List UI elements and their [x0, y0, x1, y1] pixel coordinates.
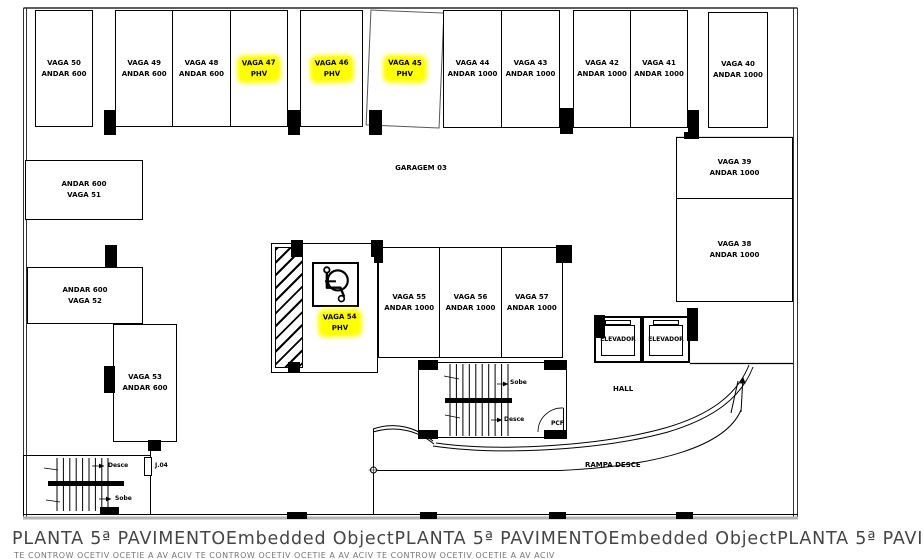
column: [104, 110, 116, 135]
garage-label: GARAGEM 03: [380, 164, 462, 172]
stall-floor-label: ANDAR 600: [62, 179, 107, 190]
column: [556, 245, 572, 263]
stall-floor-label: ANDAR 1000: [507, 303, 557, 314]
stall-vaga-39: VAGA 39 ANDAR 1000: [677, 138, 792, 198]
stall-label: VAGA 56: [454, 292, 488, 303]
stall-floor-label: ANDAR 1000: [710, 168, 760, 179]
column: [148, 440, 161, 451]
column: [560, 108, 573, 134]
stall-label: VAGA 40: [721, 59, 755, 70]
stall-group-39-38: VAGA 39 ANDAR 1000 VAGA 38 ANDAR 1000: [676, 137, 793, 302]
stall-floor-label: ANDAR 1000: [384, 303, 434, 314]
stall-label: VAGA 53: [128, 372, 162, 383]
column: [291, 240, 303, 257]
column: [105, 245, 117, 267]
plan-title-caption: PLANTA 5ª PAVIMENTOEmbedded ObjectPLANTA…: [12, 529, 923, 551]
column: [288, 362, 300, 372]
stall-vaga-41: VAGA 41 ANDAR 1000: [630, 11, 687, 127]
stall-group-42-41: VAGA 42 ANDAR 1000 VAGA 41 ANDAR 1000: [573, 10, 688, 128]
stall-floor-label: ANDAR 1000: [448, 69, 498, 80]
column: [369, 110, 382, 135]
stall-label: VAGA 43: [514, 58, 548, 69]
column: [104, 366, 115, 393]
stall-label: VAGA 42: [585, 58, 619, 69]
wheelchair-symbol-box: [312, 262, 359, 307]
stall-vaga-38: VAGA 38 ANDAR 1000: [677, 198, 792, 301]
stall-floor-label: ANDAR 1000: [446, 303, 496, 314]
stall-vaga-50: VAGA 50 ANDAR 600: [35, 10, 93, 127]
stall-label: VAGA 46: [314, 57, 348, 69]
column: [549, 512, 566, 519]
stall-vaga-51: ANDAR 600 VAGA 51: [25, 160, 143, 220]
column: [684, 132, 699, 139]
column: [544, 360, 567, 370]
column: [288, 110, 300, 135]
stall-vaga-47-phv: VAGA 47 PHV: [230, 11, 287, 126]
stairs-down-label: Desce: [108, 462, 128, 469]
stall-floor-label: ANDAR 600: [179, 69, 224, 80]
wheelchair-icon: [314, 264, 357, 305]
stall-floor-label: PHV: [315, 68, 349, 80]
phv-highlight: VAGA 47 PHV: [240, 57, 278, 80]
stairs-up-label: Sobe: [510, 379, 527, 386]
plan-caption-clipped-line: TE CONTROW OCETIV OCETIE A AV ACIV TE CO…: [14, 551, 923, 559]
stall-label: VAGA 45: [388, 58, 422, 69]
column: [287, 512, 307, 519]
stall-label: VAGA 54: [323, 312, 357, 324]
stall-vaga-44: VAGA 44 ANDAR 1000: [444, 11, 501, 127]
column: [594, 315, 605, 338]
j04-door: [144, 457, 152, 476]
stall-vaga-56: VAGA 56 ANDAR 1000: [439, 248, 500, 357]
stall-label: VAGA 57: [515, 292, 549, 303]
access-aisle-hatch: [275, 247, 303, 368]
column: [544, 430, 567, 439]
stall-vaga-54-label: VAGA 54 PHV: [302, 312, 378, 334]
stall-label: VAGA 41: [642, 58, 676, 69]
stall-label: VAGA 52: [68, 296, 102, 307]
column: [420, 512, 437, 519]
stall-vaga-52: ANDAR 600 VAGA 52: [27, 267, 143, 324]
elevator-label: ELEVADOR: [644, 336, 688, 343]
stall-label: VAGA 51: [67, 190, 101, 201]
stall-label: VAGA 50: [47, 58, 81, 69]
stall-floor-label: ANDAR 600: [123, 383, 168, 394]
stair-landing-bar: [445, 398, 512, 403]
pcf-door-label: PCF: [551, 420, 564, 427]
stall-vaga-49: VAGA 49 ANDAR 600: [116, 11, 172, 126]
stall-vaga-42: VAGA 42 ANDAR 1000: [574, 11, 630, 127]
stall-floor-label: ANDAR 1000: [634, 69, 684, 80]
stall-group-44-43: VAGA 44 ANDAR 1000 VAGA 43 ANDAR 1000: [443, 10, 560, 128]
stall-label: VAGA 55: [392, 292, 426, 303]
stall-label: VAGA 44: [456, 58, 490, 69]
stall-vaga-55: VAGA 55 ANDAR 1000: [379, 248, 439, 357]
stall-floor-label: ANDAR 1000: [506, 69, 556, 80]
elevator-2: ELEVADOR: [642, 316, 690, 363]
stall-vaga-40: VAGA 40 ANDAR 1000: [708, 12, 768, 128]
stall-floor-label: ANDAR 1000: [577, 69, 627, 80]
hall-label: HALL: [613, 385, 633, 393]
stall-floor-label: PHV: [388, 69, 422, 80]
floor-plan-canvas: VAGA 50 ANDAR 600 VAGA 49 ANDAR 600 VAGA…: [0, 0, 923, 559]
stall-label: VAGA 47: [242, 57, 276, 69]
column: [374, 245, 383, 263]
ramp-label: RAMPA DESCE: [585, 461, 641, 469]
stall-floor-label: ANDAR 1000: [710, 250, 760, 261]
j04-door-label: J.04: [155, 462, 168, 469]
stall-floor-label: PHV: [323, 322, 357, 334]
stall-group-55-57: VAGA 55 ANDAR 1000 VAGA 56 ANDAR 1000 VA…: [378, 247, 563, 358]
stall-label: VAGA 39: [718, 157, 752, 168]
column: [418, 430, 438, 439]
stall-floor-label: ANDAR 600: [42, 69, 87, 80]
phv-highlight: VAGA 45 PHV: [386, 58, 424, 80]
stall-floor-label: ANDAR 1000: [713, 70, 763, 81]
stairs-down-label: Desce: [504, 416, 524, 423]
stall-label: VAGA 48: [185, 58, 219, 69]
stall-vaga-43: VAGA 43 ANDAR 1000: [501, 11, 559, 127]
phv-highlight: VAGA 46 PHV: [312, 57, 350, 80]
stall-group-49-47: VAGA 49 ANDAR 600 VAGA 48 ANDAR 600 VAGA…: [115, 10, 288, 127]
stair-landing-bar: [48, 481, 124, 486]
stall-vaga-57: VAGA 57 ANDAR 1000: [501, 248, 562, 357]
stairs-up-label: Sobe: [115, 495, 132, 502]
stall-vaga-53: VAGA 53 ANDAR 600: [113, 324, 177, 442]
stall-label: VAGA 38: [718, 239, 752, 250]
stall-label: VAGA 49: [127, 58, 161, 69]
stall-vaga-46-phv: VAGA 46 PHV: [300, 10, 363, 127]
stall-vaga-48: VAGA 48 ANDAR 600: [172, 11, 229, 126]
column: [418, 360, 438, 370]
column: [676, 512, 693, 519]
stall-floor-label: ANDAR 600: [63, 285, 108, 296]
stall-floor-label: ANDAR 600: [122, 69, 167, 80]
stall-floor-label: PHV: [242, 68, 276, 80]
column: [687, 308, 698, 341]
phv-highlight: VAGA 54 PHV: [321, 312, 359, 335]
column: [100, 507, 119, 515]
